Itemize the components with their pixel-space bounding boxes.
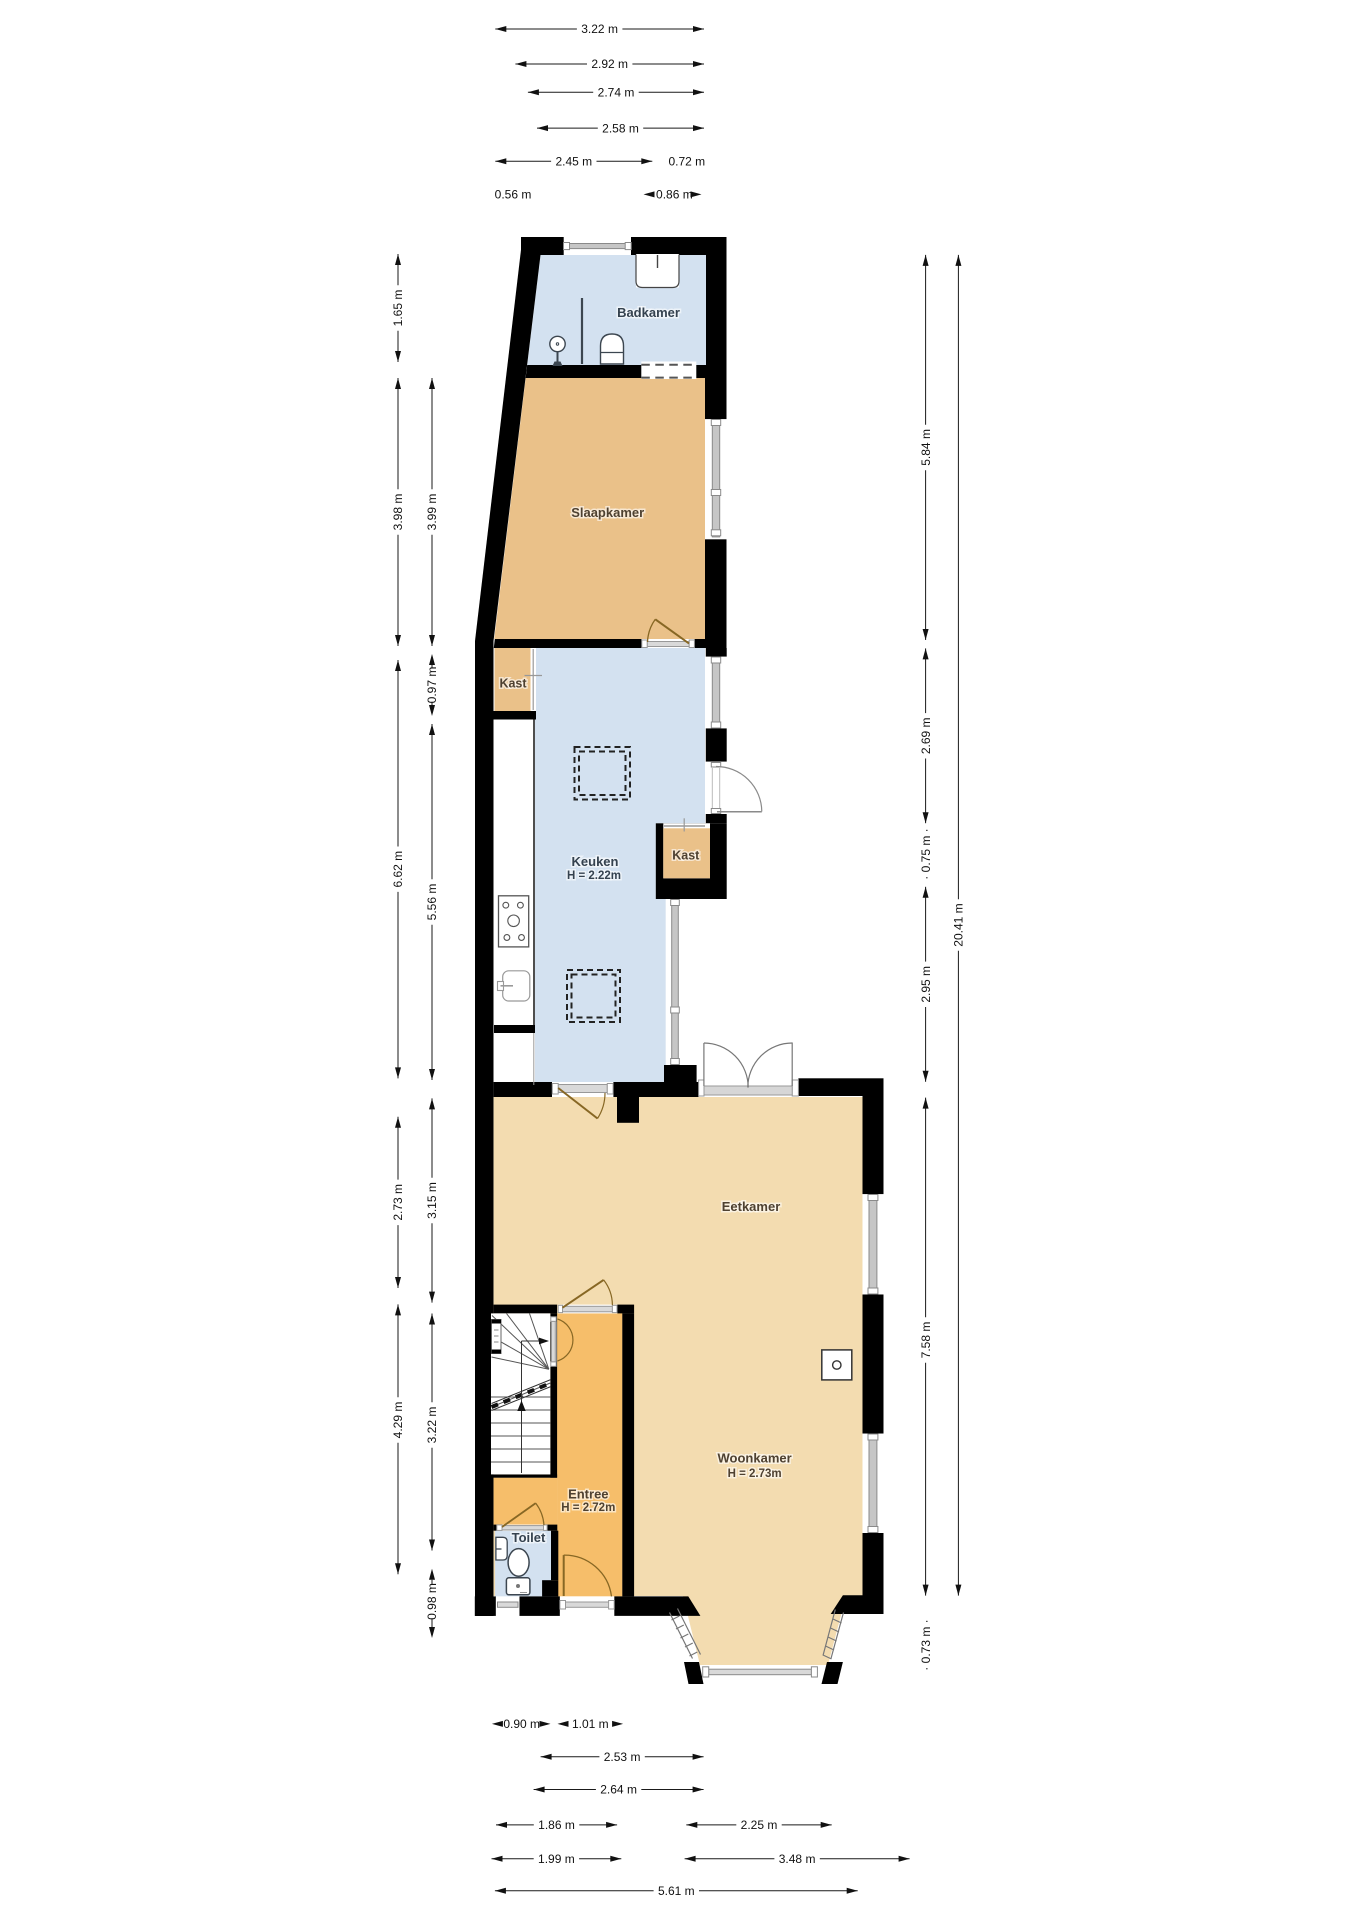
svg-text:H = 2.22m: H = 2.22m bbox=[567, 870, 621, 882]
svg-text:1.86 m: 1.86 m bbox=[538, 1818, 575, 1832]
svg-text:Slaapkamer: Slaapkamer bbox=[571, 505, 644, 520]
svg-text:· 0.73 m ·: · 0.73 m · bbox=[919, 1619, 933, 1670]
svg-text:5.61 m: 5.61 m bbox=[658, 1884, 695, 1898]
svg-text:2.69 m: 2.69 m bbox=[919, 717, 933, 754]
svg-text:20.41 m: 20.41 m bbox=[952, 903, 966, 946]
svg-text:0.72 m: 0.72 m bbox=[668, 155, 705, 169]
svg-text:0.56 m: 0.56 m bbox=[495, 188, 532, 202]
svg-text:1.65 m: 1.65 m bbox=[391, 290, 405, 327]
svg-text:2.92 m: 2.92 m bbox=[591, 57, 628, 71]
svg-text:1.01 m: 1.01 m bbox=[572, 1717, 609, 1731]
svg-text:2.95 m: 2.95 m bbox=[919, 966, 933, 1003]
svg-text:3.98 m: 3.98 m bbox=[391, 494, 405, 531]
svg-text:Entree: Entree bbox=[568, 1487, 608, 1502]
svg-text:0.98 m: 0.98 m bbox=[425, 1583, 439, 1620]
svg-text:7.58 m: 7.58 m bbox=[919, 1322, 933, 1359]
svg-text:3.48 m: 3.48 m bbox=[779, 1852, 816, 1866]
svg-text:6.62 m: 6.62 m bbox=[391, 851, 405, 888]
svg-text:Kast: Kast bbox=[499, 677, 527, 691]
svg-text:Badkamer: Badkamer bbox=[617, 305, 680, 320]
svg-text:2.45 m: 2.45 m bbox=[555, 155, 592, 169]
svg-text:2.74 m: 2.74 m bbox=[598, 86, 635, 100]
svg-text:4.29 m: 4.29 m bbox=[391, 1402, 405, 1439]
svg-text:2.25 m: 2.25 m bbox=[741, 1818, 778, 1832]
svg-text:0.86 m: 0.86 m bbox=[656, 188, 693, 202]
svg-text:5.84 m: 5.84 m bbox=[919, 429, 933, 466]
svg-text:Toilet: Toilet bbox=[512, 1530, 546, 1545]
svg-text:Kast: Kast bbox=[672, 849, 700, 863]
svg-text:0.97 m: 0.97 m bbox=[425, 667, 439, 704]
svg-text:2.73 m: 2.73 m bbox=[391, 1184, 405, 1221]
svg-text:3.22 m: 3.22 m bbox=[581, 22, 618, 36]
svg-text:5.56 m: 5.56 m bbox=[425, 884, 439, 921]
svg-text:3.22 m: 3.22 m bbox=[425, 1407, 439, 1444]
svg-text:H = 2.72m: H = 2.72m bbox=[561, 1502, 615, 1514]
svg-text:Woonkamer: Woonkamer bbox=[718, 1451, 792, 1466]
svg-text:2.53 m: 2.53 m bbox=[604, 1750, 641, 1764]
svg-text:3.15 m: 3.15 m bbox=[425, 1182, 439, 1219]
svg-text:0.90 m: 0.90 m bbox=[503, 1717, 540, 1731]
svg-text:H = 2.73m: H = 2.73m bbox=[728, 1468, 782, 1480]
svg-text:2.64 m: 2.64 m bbox=[600, 1783, 637, 1797]
svg-text:1.99 m: 1.99 m bbox=[538, 1852, 575, 1866]
svg-text:Keuken: Keuken bbox=[572, 854, 619, 869]
svg-text:· 0.75 m ·: · 0.75 m · bbox=[919, 828, 933, 879]
svg-text:Eetkamer: Eetkamer bbox=[722, 1199, 781, 1214]
svg-text:2.58 m: 2.58 m bbox=[602, 121, 639, 135]
svg-text:3.99 m: 3.99 m bbox=[425, 494, 439, 531]
